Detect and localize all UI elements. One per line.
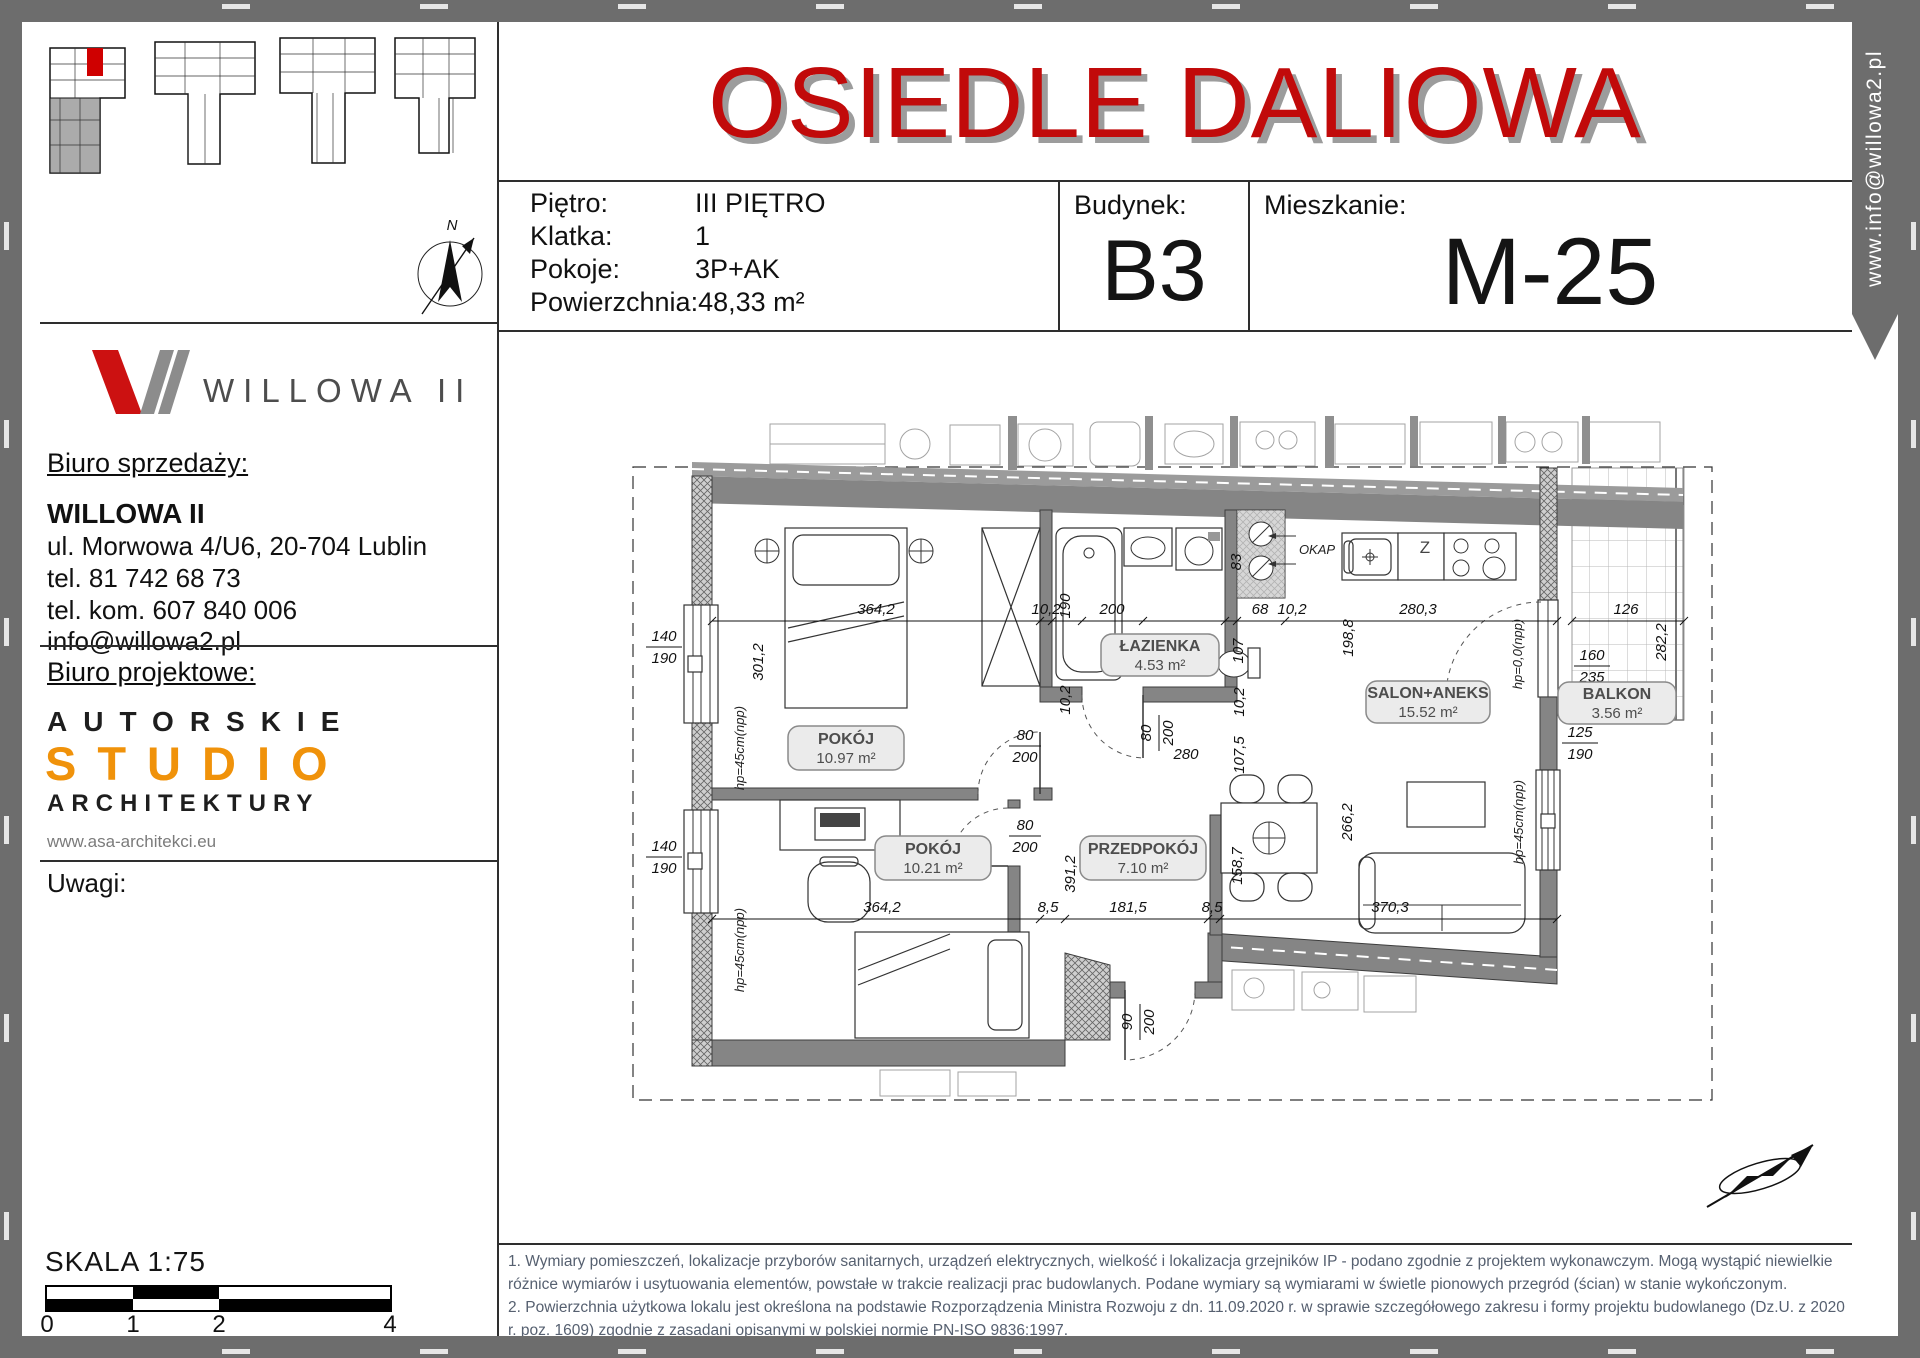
field-klatka: Klatka: 1 (530, 220, 1050, 253)
stove (1444, 533, 1516, 580)
design-line-autorskie: AUTORSKIE (47, 706, 355, 738)
banner-arrow-icon (1852, 314, 1898, 360)
dim-label: 160 (1579, 647, 1605, 664)
desk-chair (808, 862, 870, 922)
sales-email: info@willowa2.pl (47, 626, 241, 656)
dim-label: 181,5 (1109, 899, 1147, 916)
compass-n-label: N (447, 217, 458, 234)
compass-icon: N (412, 212, 488, 322)
field-value: III PIĘTRO (695, 188, 826, 219)
coffee-table (1407, 782, 1485, 827)
dim-label: 68 (1252, 601, 1269, 618)
dim-label: 80 (1017, 727, 1034, 744)
sidebar-divider-2 (40, 645, 497, 647)
dim-label: 364,2 (857, 601, 895, 618)
single-bed (855, 932, 1029, 1038)
dim-label: 80 (1017, 817, 1034, 834)
sidebar-divider-3 (40, 860, 497, 862)
page-title: OSIEDLE DALIOWA (500, 34, 1850, 176)
scale-tick-2: 2 (212, 1311, 225, 1339)
dim-label: 391,2 (1062, 855, 1079, 893)
left-exterior-wall (692, 476, 712, 1040)
okap-label: OKAP (1299, 542, 1335, 557)
field-pietro: Piętro: III PIĘTRO (530, 187, 1050, 220)
dim-label: 83 (1228, 553, 1245, 570)
sink-z-label: Z (1420, 538, 1430, 557)
legal-note-2: 2. Powierzchnia użytkowa lokalu jest okr… (508, 1297, 1848, 1343)
dim-label: 8,5 (1038, 899, 1060, 916)
field-label: Powierzchnia: (530, 287, 698, 318)
field-value: 3P+AK (695, 254, 780, 285)
sidebar-divider (497, 22, 499, 1336)
room-name: PRZEDPOKÓJ (1088, 839, 1198, 858)
dim-label: 280,3 (1398, 601, 1437, 618)
website-banner-text: www.info@willowa2.pl (1863, 50, 1887, 287)
notes-label: Uwagi: (47, 868, 126, 899)
dim-label: 200 (1098, 601, 1125, 618)
dim-label: 200 (1011, 839, 1038, 856)
dim-label: 190 (651, 650, 677, 667)
sales-office-block: WILLOWA II ul. Morwowa 4/U6, 20-704 Lubl… (47, 497, 427, 658)
sales-phone-2: tel. kom. 607 840 006 (47, 595, 297, 625)
room-area: 15.52 m² (1398, 704, 1457, 721)
hp-annotation: hp=0,0(npp) (1510, 619, 1525, 689)
field-powierzchnia: Powierzchnia: 48,33 m² (530, 286, 1050, 319)
dim-label: 126 (1613, 601, 1639, 618)
north-arrow-icon (1695, 1125, 1825, 1225)
sales-address: ul. Morwowa 4/U6, 20-704 Lublin (47, 531, 427, 561)
window-1 (684, 605, 718, 723)
scale-tick-0: 0 (40, 1311, 53, 1339)
scale-tick-1: 1 (126, 1311, 139, 1339)
dim-label: 200 (1160, 720, 1177, 747)
room-area: 7.10 m² (1118, 860, 1169, 877)
frame-ticks-bottom (52, 1349, 1868, 1354)
scale-bar (45, 1285, 392, 1312)
design-website: www.asa-architekci.eu (47, 832, 216, 852)
sales-office-heading: Biuro sprzedaży: (47, 448, 248, 479)
field-pokoje: Pokoje: 3P+AK (530, 253, 1050, 286)
table-divider (499, 330, 1852, 332)
title-divider (499, 180, 1852, 182)
apartment-info-table: Piętro: III PIĘTRO Klatka: 1 Pokoje: 3P+… (530, 187, 1050, 319)
field-value: 1 (695, 221, 710, 252)
dim-label: 107 (1230, 638, 1247, 664)
willowa-logo-icon (82, 342, 192, 424)
dim-label: 80 (1138, 724, 1155, 741)
window-2 (684, 810, 718, 913)
dim-label: 8,5 (1202, 899, 1224, 916)
dim-label: 200 (1141, 1009, 1158, 1036)
room-area: 4.53 m² (1135, 657, 1186, 674)
hp-annotation: hp=45cm(npp) (732, 908, 747, 992)
mieszkanie-value: M-25 (1250, 218, 1850, 327)
top-structural-wall (692, 462, 1683, 529)
design-line-studio: STUDIO (45, 736, 349, 791)
site-plan-gray-wing (50, 98, 100, 173)
sales-phone-1: tel. 81 742 68 73 (47, 563, 241, 593)
field-value: 48,33 m² (698, 287, 805, 318)
neighbour-wall-stubs (1008, 416, 1590, 470)
dim-label: 10,2 (1057, 685, 1074, 715)
scale-label: SKALA 1:75 (45, 1246, 206, 1278)
dim-label: 280 (1172, 746, 1199, 763)
dim-label: 90 (1119, 1013, 1136, 1030)
dim-label: 10,2 (1231, 687, 1248, 717)
dim-label: 190 (651, 860, 677, 877)
dim-label: 190 (1567, 746, 1593, 763)
dim-label: 266,2 (1339, 803, 1356, 842)
dim-label: 125 (1567, 724, 1593, 741)
dim-label: 10,2 (1277, 601, 1307, 618)
budynek-label: Budynek: (1074, 190, 1187, 221)
dim-label: 370,3 (1371, 899, 1409, 916)
field-label: Pokoje: (530, 254, 695, 285)
field-label: Klatka: (530, 221, 695, 252)
kitchen-fixtures: Z (1342, 533, 1516, 580)
dim-label: 140 (651, 628, 677, 645)
sidebar-divider-1 (40, 322, 497, 324)
room-name: POKÓJ (905, 839, 961, 858)
room-area: 10.21 m² (903, 860, 962, 877)
site-plan-map (35, 30, 485, 210)
legal-note-1: 1. Wymiary pomieszczeń, lokalizacje przy… (508, 1251, 1848, 1297)
hp-annotation: hp=45cm(npp) (1511, 780, 1526, 864)
dim-label: 140 (651, 838, 677, 855)
dim-label: 282,2 (1653, 623, 1670, 662)
dim-label: 200 (1011, 749, 1038, 766)
footer-divider (499, 1243, 1852, 1245)
neighbour-units-above (770, 422, 1660, 466)
room-area: 10.97 m² (816, 750, 875, 767)
design-line-architektury: ARCHITEKTURY (47, 790, 319, 818)
scale-tick-4: 4 (383, 1311, 396, 1339)
website-banner: www.info@willowa2.pl (1852, 22, 1898, 314)
dim-label: 107,5 (1231, 736, 1248, 774)
mieszkanie-label: Mieszkanie: (1264, 190, 1407, 221)
design-office-heading: Biuro projektowe: (47, 657, 256, 688)
hp-annotation: hp=45cm(npp) (732, 706, 747, 790)
dim-label: 190 (1057, 593, 1074, 619)
frame-ticks-right (1911, 52, 1916, 1306)
room-name: BALKON (1583, 686, 1651, 703)
floor-plan: OKAP (620, 410, 1720, 1110)
legal-notes: 1. Wymiary pomieszczeń, lokalizacje przy… (508, 1251, 1848, 1343)
sofa (1359, 853, 1525, 933)
dim-label: 198,8 (1340, 619, 1357, 657)
logo-text: WILLOWA II (203, 372, 473, 410)
field-label: Piętro: (530, 188, 695, 219)
room-area: 3.56 m² (1592, 705, 1643, 722)
room-name: SALON+ANEKS (1367, 685, 1489, 702)
frame-ticks-top (52, 4, 1868, 9)
dim-label: 158,7 (1229, 847, 1246, 885)
room-name: POKÓJ (818, 729, 874, 748)
bedroom1-furniture (755, 528, 1040, 708)
highlighted-unit-marker (87, 48, 103, 76)
budynek-value: B3 (1060, 222, 1248, 321)
dim-label: 364,2 (863, 899, 901, 916)
sales-company: WILLOWA II (47, 498, 205, 529)
frame-ticks-left (4, 52, 9, 1306)
double-bed (785, 528, 907, 708)
dim-label: 301,2 (750, 643, 767, 681)
room-name: ŁAZIENKA (1120, 638, 1201, 655)
floorplan-sheet: OSIEDLE DALIOWA Piętro: III PIĘTRO Klatk… (0, 0, 1920, 1358)
